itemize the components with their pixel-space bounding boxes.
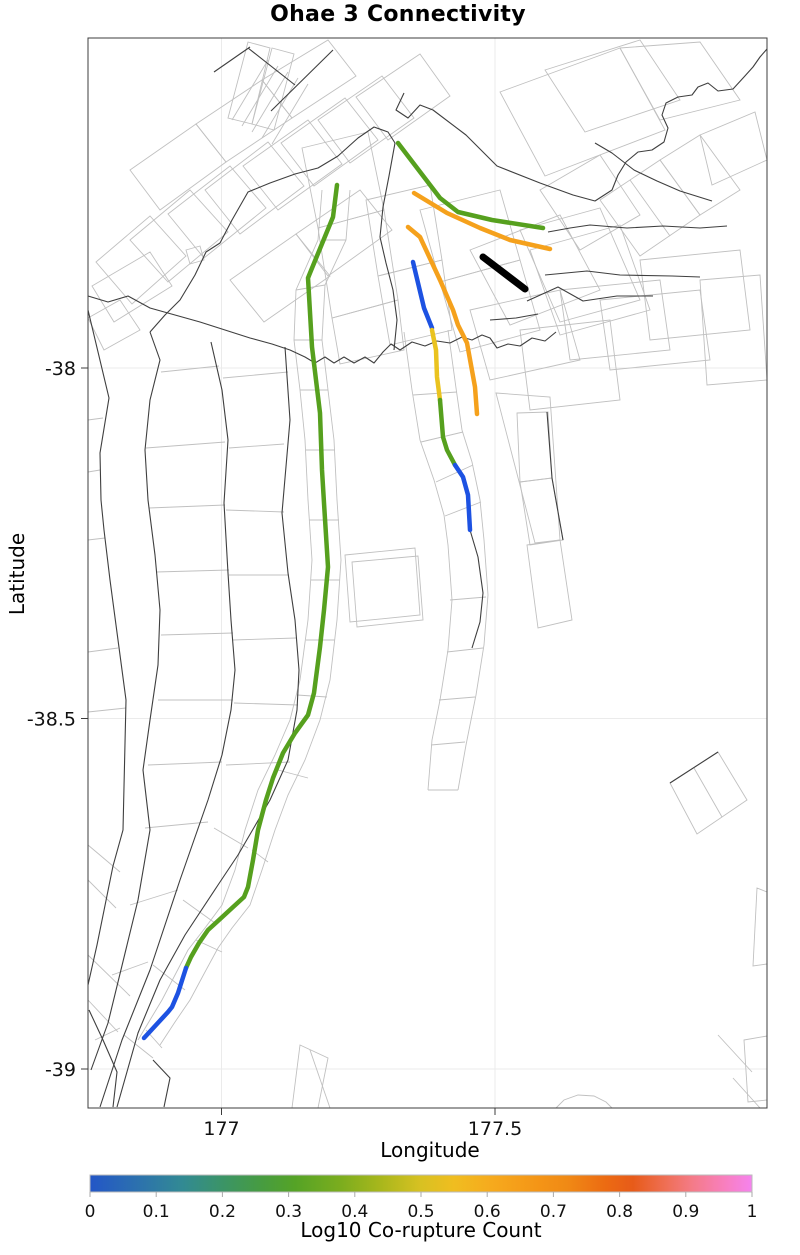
fault-trace (100, 342, 235, 1107)
fault-outline (168, 166, 266, 258)
fault-outline (205, 142, 304, 234)
fault-outline-line (161, 366, 219, 372)
fault-outline (292, 1045, 328, 1108)
fault-outline-line (234, 703, 298, 705)
fault-outline-line (404, 332, 452, 790)
fault-outline-line (556, 1095, 612, 1108)
x-axis-label: Longitude (130, 1138, 730, 1162)
fault-outline-line (88, 470, 100, 472)
rupture-segment-black-source-fault (483, 257, 525, 289)
fault-trace (153, 1060, 170, 1107)
fault-outline-line (753, 888, 767, 966)
fault-outline-line (233, 638, 296, 640)
fault-outline (620, 42, 740, 120)
fault-outline-line (88, 708, 126, 712)
rupture-segment-mid-yellow (432, 330, 440, 400)
fault-trace (117, 347, 299, 1107)
fault-outline (130, 190, 228, 282)
fault-outline-line (242, 66, 278, 126)
fault-outline (517, 412, 552, 482)
fault-outline (196, 80, 292, 162)
fault-trace (89, 1010, 117, 1107)
colorbar-gradient (90, 1175, 752, 1192)
fault-trace (380, 143, 397, 350)
fault-outline (527, 540, 572, 628)
fault-trace (396, 49, 767, 201)
figure-ohae3-connectivity: Ohae 3 Connectivity 177177.5-38-38.5-390… (0, 0, 800, 1255)
fault-outline-line (88, 880, 116, 908)
colorbar-label: Log10 Co-rupture Count (90, 1218, 752, 1242)
fault-outline-line (149, 505, 225, 508)
fault-outline-line (450, 597, 486, 600)
fault-outline (660, 135, 740, 215)
rupture-segment-orange-upper (414, 193, 550, 249)
fault-outline-line (183, 900, 215, 923)
fault-outline-line (447, 648, 483, 652)
fault-outline-line (229, 444, 284, 448)
rupture-segment-top-green (398, 143, 543, 228)
fault-outline (92, 252, 172, 322)
fault-trace (595, 143, 712, 201)
fault-outline (332, 300, 404, 364)
fault-outline-line (439, 697, 475, 700)
x-tick-label: 177 (203, 1118, 239, 1140)
fault-outline-line (146, 442, 225, 448)
fault-outline-line (226, 510, 284, 512)
fault-trace (271, 50, 333, 111)
fault-trace (248, 48, 295, 85)
fault-trace (214, 47, 250, 72)
fault-outline-line (448, 330, 488, 790)
fault-outline-line (88, 648, 118, 652)
rupture-segment-mid-blue-upper (413, 262, 432, 328)
fault-trace (470, 530, 483, 648)
fault-outline-line (88, 538, 105, 540)
fault-outline-line (112, 962, 148, 975)
fault-outline-line (232, 60, 268, 120)
fault-outline (318, 76, 414, 163)
fault-outline-line (88, 955, 130, 996)
fault-outline (352, 556, 423, 627)
fault-trace (670, 752, 718, 783)
y-tick-label: -38.5 (27, 709, 76, 731)
fault-outline (356, 54, 450, 140)
fault-outline (600, 290, 710, 370)
fault-outline (640, 250, 750, 340)
fault-outline (130, 124, 226, 210)
fault-outline-line (431, 742, 465, 745)
y-axis-label: Latitude (5, 529, 29, 619)
fault-outline-line (223, 372, 288, 378)
fault-outline-line (445, 502, 481, 516)
fault-outline (496, 393, 560, 543)
fault-outline-line (694, 768, 722, 817)
y-tick-label: -38 (45, 358, 76, 380)
fault-outline-line (161, 633, 233, 635)
y-tick-label: -39 (45, 1059, 76, 1081)
fault-trace (150, 127, 395, 332)
x-tick-label: 177.5 (468, 1118, 522, 1140)
rupture-segment-long-fault-green (186, 185, 337, 968)
rupture-segment-mid-green (440, 400, 455, 465)
fault-trace (548, 225, 727, 232)
map-plot-canvas: 177177.5-38-38.5-3900.10.20.30.40.50.60.… (0, 0, 800, 1255)
rupture-segment-orange-lower (408, 227, 477, 414)
fault-outline (545, 40, 680, 132)
fault-outline-line (156, 570, 229, 572)
fault-outline (296, 190, 392, 276)
fault-trace (88, 310, 126, 985)
fault-outline-line (148, 762, 222, 765)
fault-outline (530, 225, 650, 335)
fault-outline (96, 216, 186, 304)
fault-outline-line (88, 1000, 118, 1032)
fault-outline-line (413, 392, 457, 395)
fault-outline (500, 48, 665, 176)
fault-trace (545, 271, 700, 277)
fault-outline-line (88, 418, 103, 420)
rupture-segment-mid-blue-lower (455, 465, 470, 530)
fault-outline-line (718, 1035, 752, 1072)
fault-outline (243, 120, 342, 210)
